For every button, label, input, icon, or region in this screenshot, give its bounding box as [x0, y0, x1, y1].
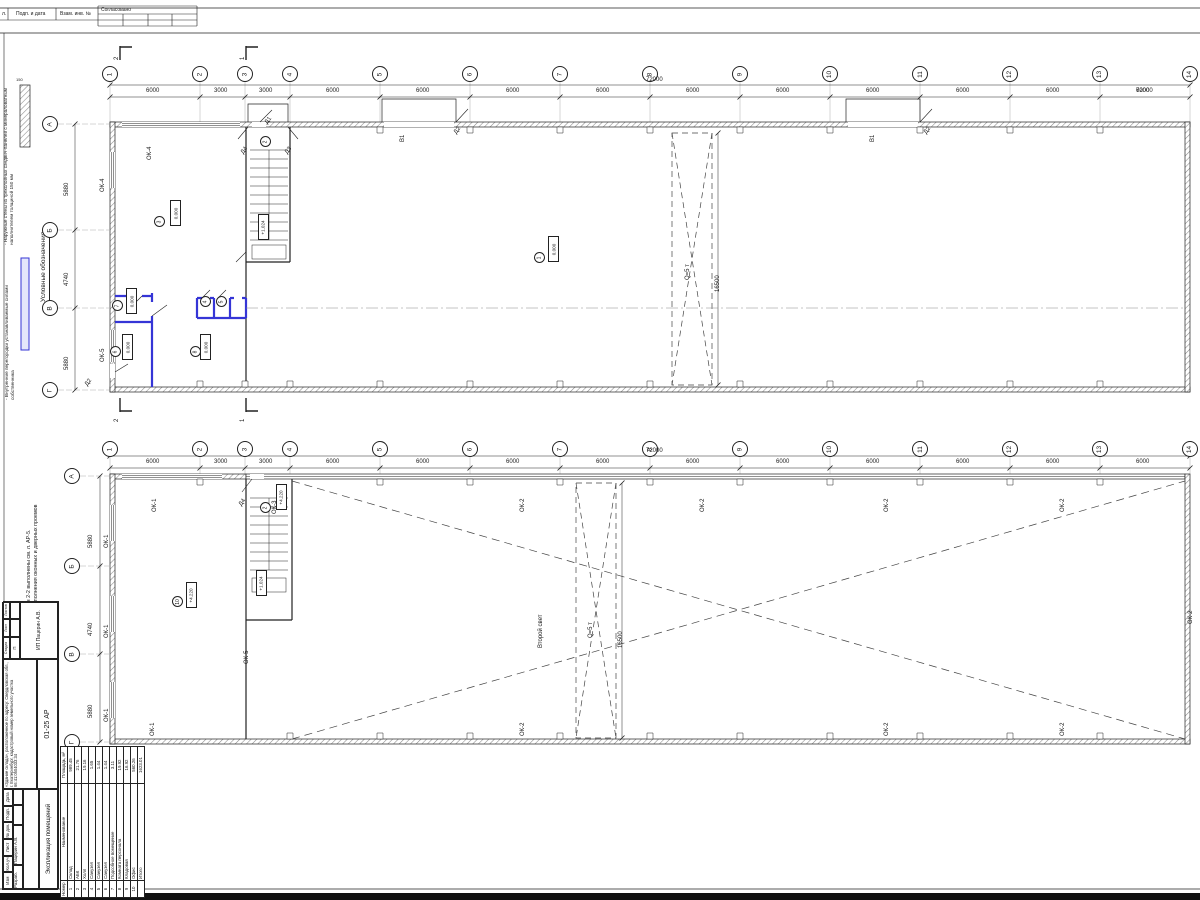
- annotation-text: ОК-5: [100, 349, 106, 363]
- annotation-text: Q=5 т: [588, 622, 594, 638]
- annotation-text: В1: [870, 135, 876, 142]
- sheet-linework: [0, 0, 1200, 900]
- annotation-text: 16500: [715, 275, 721, 292]
- axis-bubble: 11: [912, 66, 928, 82]
- annotation-text: ОК-2: [520, 499, 526, 513]
- annotation-text: 3000: [259, 88, 272, 94]
- annotation-text: 3000: [214, 459, 227, 465]
- row-bubble: Б: [42, 222, 58, 238]
- room-number-bubble: 4: [200, 296, 211, 307]
- annotation-text: ОК-1: [150, 723, 156, 737]
- annotation-text: 72000: [646, 77, 663, 83]
- sheet-title: Экспликация помещений: [39, 789, 59, 889]
- axis-bubble: 4: [282, 441, 298, 457]
- annotation-text: 5880: [88, 705, 94, 718]
- explication-row: 2АБК21.76: [75, 747, 82, 898]
- annotation-text: 6000: [416, 459, 429, 465]
- annotation-text: ОК-2: [1060, 723, 1066, 737]
- axis-bubble: 14: [1182, 66, 1198, 82]
- annotation-text: 5880: [64, 183, 70, 196]
- col-room-number: Номер помещ.: [61, 881, 68, 898]
- annotation-text: ОК-1: [152, 499, 158, 513]
- annotation-text: ОК-2: [884, 723, 890, 737]
- annotation-text: 5880: [88, 535, 94, 548]
- elevation-mark: 0.000: [126, 288, 137, 314]
- axis-bubble: 10: [822, 66, 838, 82]
- room-number-bubble: 2: [260, 136, 271, 147]
- legend-title: Условные обозначения: [40, 232, 50, 302]
- frame-cell-vzam-inv: Взам. инв. №: [60, 12, 91, 17]
- annotation-text: 6000: [1046, 88, 1059, 94]
- title-block: ИзмКол.учЛист№ док.Подп.Дата Разраб. Пац…: [2, 602, 58, 890]
- explication-row: 5Санузел1.44: [96, 747, 103, 898]
- stamp-col-label: Изм: [3, 872, 13, 889]
- axis-bubble: 11: [912, 441, 928, 457]
- axis-bubble: 9: [732, 66, 748, 82]
- axis-bubble: 6: [462, 66, 478, 82]
- stamp-header-cols: ИзмКол.учЛист№ док.Подп.Дата: [3, 789, 13, 889]
- annotation-text: 3000: [259, 459, 272, 465]
- annotation-text: 6000: [326, 459, 339, 465]
- axis-bubble: 1: [102, 66, 118, 82]
- elevation-mark: +4.220: [276, 484, 287, 510]
- elevation-mark: +4.220: [186, 582, 197, 608]
- explication-row: 9Кладовая16.92: [124, 747, 131, 898]
- axis-bubble: 3: [237, 441, 253, 457]
- col-room-name: Наименование: [61, 784, 68, 881]
- annotation-text: 6000: [506, 88, 519, 94]
- annotation-text: 6000: [326, 88, 339, 94]
- annotation-text: 16500: [618, 631, 624, 648]
- axis-bubble: 5: [372, 441, 388, 457]
- room-number-bubble: 5: [216, 296, 227, 307]
- explication-row: 7Подсобное помещение3.11: [110, 747, 117, 898]
- annotation-text: 2: [114, 57, 120, 60]
- row-bubble: В: [42, 300, 58, 316]
- annotation-text: 6000: [686, 459, 699, 465]
- row-bubble: Б: [64, 558, 80, 574]
- stamp-sheet-label: Лист: [3, 619, 10, 637]
- explication-row: 10Офис560.26: [131, 747, 138, 898]
- room-number-bubble: 10: [172, 596, 183, 607]
- axis-bubble: 14: [1182, 441, 1198, 457]
- col-room-area: Площадь, м²: [61, 747, 68, 784]
- explication-header-row: Номер помещ. Наименование Площадь, м²: [61, 747, 68, 898]
- annotation-text: Q=5 т: [685, 264, 691, 280]
- axis-bubble: 7: [552, 66, 568, 82]
- axis-bubble: 2: [192, 441, 208, 457]
- axis-bubble: 4: [282, 66, 298, 82]
- legend-thickness: 150: [16, 78, 23, 82]
- explication-row: Итого1623.01: [138, 747, 145, 898]
- room-number-bubble: 2: [260, 502, 271, 513]
- annotation-text: 6000: [866, 88, 879, 94]
- annotation-text: 6000: [1136, 459, 1149, 465]
- annotation-text: ОК-2: [700, 499, 706, 513]
- stamp-empty-rows: [23, 789, 39, 889]
- row-bubble: В: [64, 646, 80, 662]
- sheet-bottom-bar: [0, 893, 1200, 900]
- explication-row: 4Санузел1.65: [89, 747, 96, 898]
- stamp-signature: [13, 805, 23, 825]
- frame-cell-l: л.: [2, 12, 6, 17]
- stamp-sheet-value: [10, 619, 20, 637]
- axis-bubble: 1: [102, 441, 118, 457]
- annotation-text: 6000: [956, 459, 969, 465]
- explication-table: Номер помещ. Наименование Площадь, м² 1С…: [60, 746, 145, 898]
- annotation-text: 3000: [214, 88, 227, 94]
- elevation-mark: 0.000: [122, 334, 133, 360]
- annotation-text: ОК-1: [104, 625, 110, 639]
- approved-label: Согласовано: [101, 8, 131, 13]
- axis-bubble: 12: [1002, 66, 1018, 82]
- annotation-text: 6000: [416, 88, 429, 94]
- stamp-col-label: Подп.: [3, 806, 13, 823]
- legend-item-partition: - Внутренние перегородки устанавливаемые…: [4, 260, 16, 400]
- annotation-text: 6000: [956, 88, 969, 94]
- explication-row: 6Санузел1.44: [103, 747, 110, 898]
- elevation-mark: 0.000: [548, 236, 559, 262]
- elevation-mark: +1.024: [258, 214, 269, 240]
- stamp-name: Пацерин А.В.: [13, 825, 23, 865]
- axis-bubble: 5: [372, 66, 388, 82]
- explication-row: 1Склад989.45: [68, 747, 75, 898]
- annotation-text: ОК-1: [104, 535, 110, 549]
- annotation-text: В1: [400, 135, 406, 142]
- axis-bubble: 7: [552, 441, 568, 457]
- annotation-text: 5880: [64, 357, 70, 370]
- stamp-sheets-label: Листов: [3, 601, 10, 619]
- axis-bubble: 10: [822, 441, 838, 457]
- elevation-mark: 0.000: [200, 334, 211, 360]
- annotation-text: 6000: [776, 459, 789, 465]
- room-number-bubble: 7: [112, 300, 123, 311]
- annotation-text: 6000: [146, 459, 159, 465]
- stamp-date: [13, 789, 23, 805]
- annotation-text: ОК-2: [884, 499, 890, 513]
- axis-bubble: 2: [192, 66, 208, 82]
- axis-bubble: 6: [462, 441, 478, 457]
- annotation-text: ОК-2: [1188, 611, 1194, 625]
- annotation-text: 4740: [88, 623, 94, 636]
- legend-item-exterior-wall: - Наружные стены из трехслойных сэндвич-…: [3, 83, 15, 245]
- annotation-text: Второй свет: [538, 614, 544, 648]
- axis-bubble: 9: [732, 441, 748, 457]
- annotation-text: 4740: [64, 273, 70, 286]
- annotation-text: 6000: [1046, 459, 1059, 465]
- annotation-text: ОК-5: [244, 651, 250, 665]
- annotation-text: 6000: [506, 459, 519, 465]
- stamp-doc-code: 01-25 АР: [37, 659, 59, 789]
- annotation-text: 6000: [596, 88, 609, 94]
- row-bubble: А: [64, 468, 80, 484]
- annotation-text: ОК-2: [1060, 499, 1066, 513]
- room-number-bubble: 6: [110, 346, 121, 357]
- annotation-text: 6000: [776, 88, 789, 94]
- axis-bubble: 13: [1092, 441, 1108, 457]
- row-bubble: А: [42, 116, 58, 132]
- annotation-text: ОК-4: [100, 179, 106, 193]
- annotation-text: 6000: [146, 88, 159, 94]
- stamp-stage-value: П: [10, 637, 20, 659]
- stamp-role: Разраб.: [13, 865, 23, 889]
- stamp-col-label: Кол.уч: [3, 856, 13, 873]
- stamp-col-label: № док.: [3, 822, 13, 839]
- frame-cell-podp-data: Подп. и дата: [16, 12, 45, 17]
- row-bubble: Г: [42, 382, 58, 398]
- annotation-text: 6000: [596, 459, 609, 465]
- elevation-mark: 0.000: [170, 200, 181, 226]
- annotation-text: 1: [240, 419, 246, 422]
- annotation-text: ОК-1: [104, 709, 110, 723]
- axis-bubble: 3: [237, 66, 253, 82]
- stamp-col-label: Лист: [3, 839, 13, 856]
- annotation-text: 72000: [646, 448, 663, 454]
- axis-bubble: 13: [1092, 66, 1108, 82]
- explication-row: 8Комната персонала19.92: [117, 747, 124, 898]
- room-number-bubble: 1: [534, 252, 545, 263]
- annotation-text: ОК-2: [520, 723, 526, 737]
- stamp-company: ИП Пацерин А.В.: [20, 601, 59, 659]
- stamp-col-label: Дата: [3, 789, 13, 806]
- stamp-sheets-value: [10, 601, 20, 619]
- annotation-text: 6000: [686, 88, 699, 94]
- elevation-mark: +1.024: [256, 570, 267, 596]
- annotation-text: 6000: [866, 459, 879, 465]
- stamp-project: «Здание склада», расположенное по адресу…: [3, 659, 37, 789]
- annotation-text: 1: [240, 57, 246, 60]
- stamp-stage-label: Стадия: [3, 637, 10, 659]
- room-number-bubble: 3: [154, 216, 165, 227]
- annotation-text: ОК-4: [147, 147, 153, 161]
- annotation-text: 2: [114, 419, 120, 422]
- axis-bubble: 12: [1002, 441, 1018, 457]
- explication-row: 3Холл19.16: [82, 747, 89, 898]
- annotation-text: 6000: [1136, 88, 1149, 94]
